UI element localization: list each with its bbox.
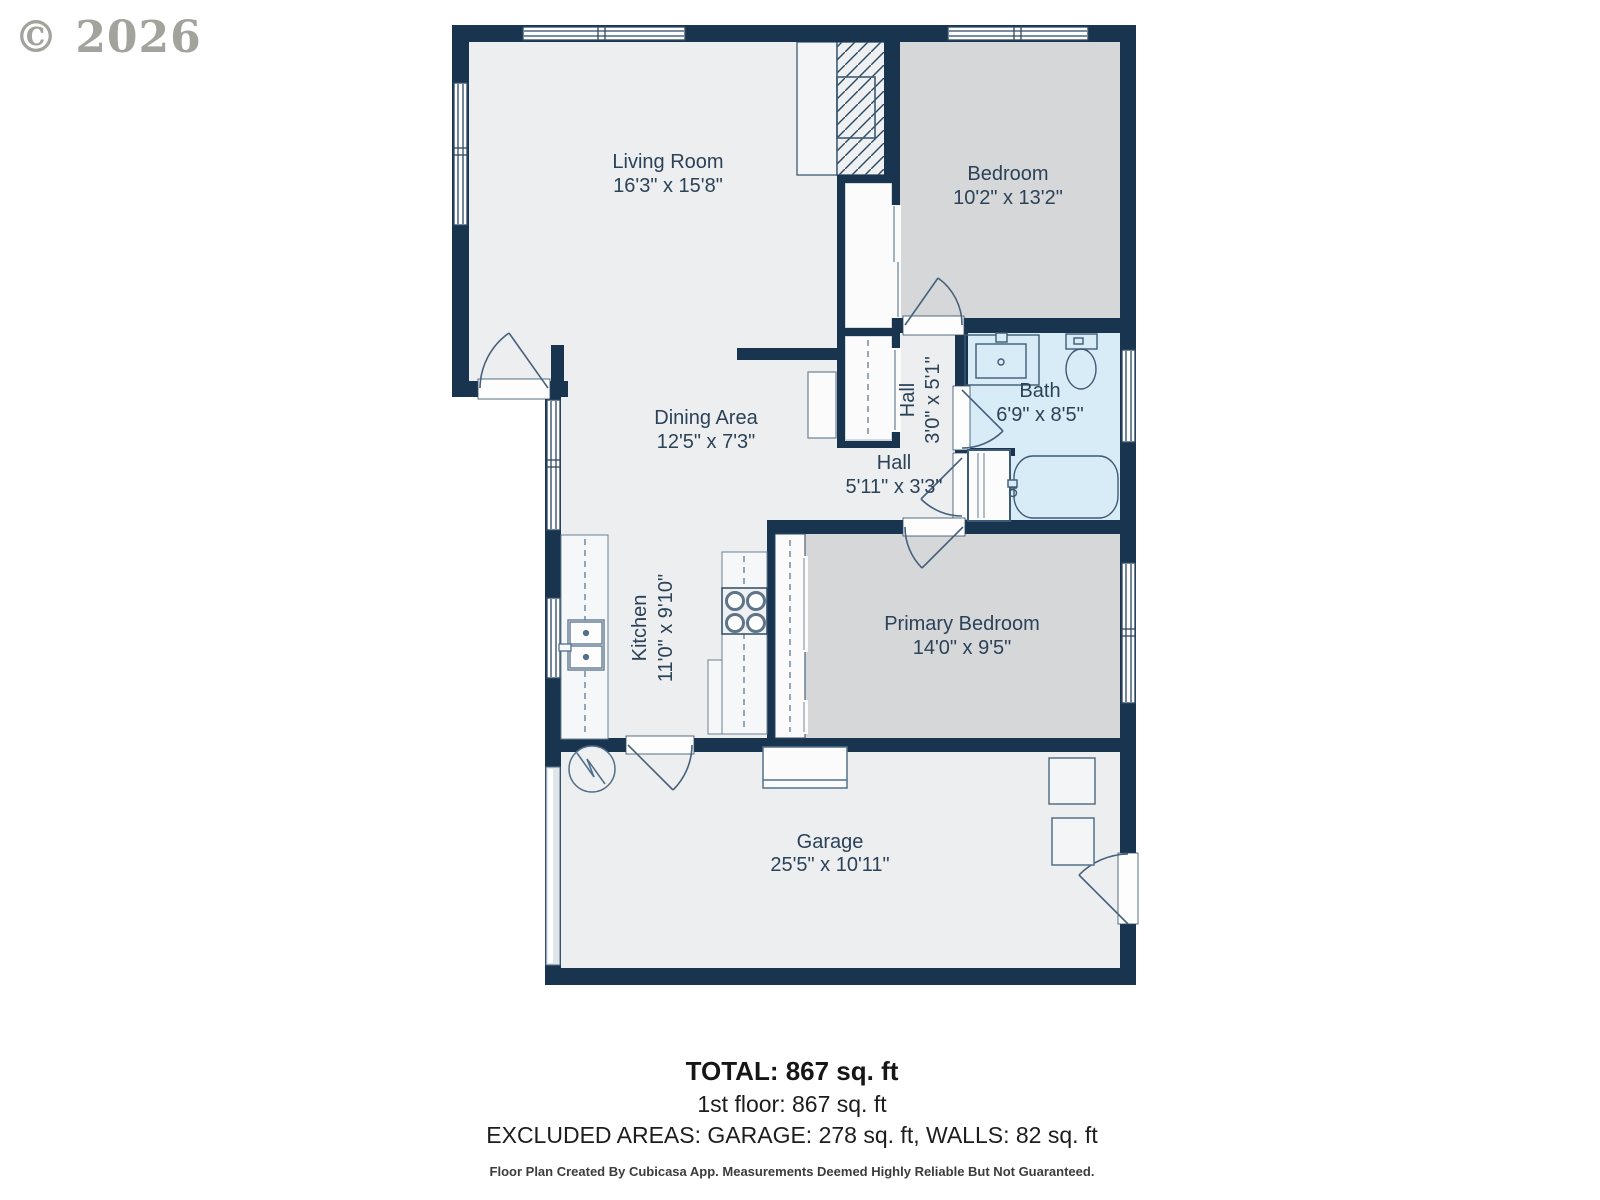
window-icon <box>523 27 685 40</box>
summary-block: TOTAL: 867 sq. ft 1st floor: 867 sq. ft … <box>486 1056 1098 1179</box>
living-room-dims: 16'3" x 15'8" <box>613 175 723 197</box>
living-room-label: Living Room <box>612 151 723 173</box>
total-area-text: TOTAL: 867 sq. ft <box>686 1056 899 1086</box>
window-icon <box>547 400 560 530</box>
fridge-icon <box>808 372 836 438</box>
dining-dims: 12'5" x 7'3" <box>657 431 756 453</box>
window-icon <box>547 598 560 678</box>
hall-upper-dims: 3'0" x 5'1" <box>922 356 944 443</box>
primary-bedroom-floor <box>775 534 1120 738</box>
garage-label: Garage <box>797 831 864 853</box>
hall-upper-label: Hall <box>897 383 919 417</box>
window-icon <box>454 83 467 225</box>
primary-closet <box>775 534 808 738</box>
floor-plan-page: © 2026 <box>0 0 1600 1200</box>
dining-label: Dining Area <box>654 407 758 429</box>
stove-icon <box>722 588 767 634</box>
excluded-areas-text: EXCLUDED AREAS: GARAGE: 278 sq. ft, WALL… <box>486 1122 1098 1148</box>
garage-equipment <box>1049 758 1095 804</box>
bedroom-dims: 10'2" x 13'2" <box>953 187 1063 209</box>
bath-dims: 6'9" x 8'5" <box>996 404 1083 426</box>
floor-plan-drawing: © 2026 <box>0 0 1600 1200</box>
water-heater-icon <box>569 746 615 792</box>
hall-lower-label: Hall <box>877 452 911 474</box>
window-icon <box>1122 563 1135 703</box>
window-icon <box>948 27 1088 40</box>
window-icon <box>1122 350 1135 442</box>
copyright-watermark: © 2026 <box>14 12 202 63</box>
primary-bedroom-dims: 14'0" x 9'5" <box>913 637 1012 659</box>
furnace-icon <box>763 747 847 788</box>
primary-bedroom-label: Primary Bedroom <box>884 613 1040 635</box>
linen-closet-icon <box>968 450 1010 521</box>
hall-lower-dims: 5'11" x 3'3" <box>845 476 942 498</box>
bath-label: Bath <box>1019 380 1060 402</box>
garage-door-icon <box>546 767 560 965</box>
disclaimer-text: Floor Plan Created By Cubicasa App. Meas… <box>490 1164 1095 1179</box>
first-floor-area-text: 1st floor: 867 sq. ft <box>697 1091 887 1117</box>
garage-dims: 25'5" x 10'11" <box>770 854 889 876</box>
kitchen-label: Kitchen <box>629 595 651 662</box>
bedroom-closet <box>845 183 892 440</box>
bedroom-label: Bedroom <box>967 163 1048 185</box>
fireplace-icon <box>797 42 888 175</box>
garage-equipment <box>1052 818 1094 865</box>
kitchen-dims: 11'0" x 9'10" <box>655 574 677 682</box>
